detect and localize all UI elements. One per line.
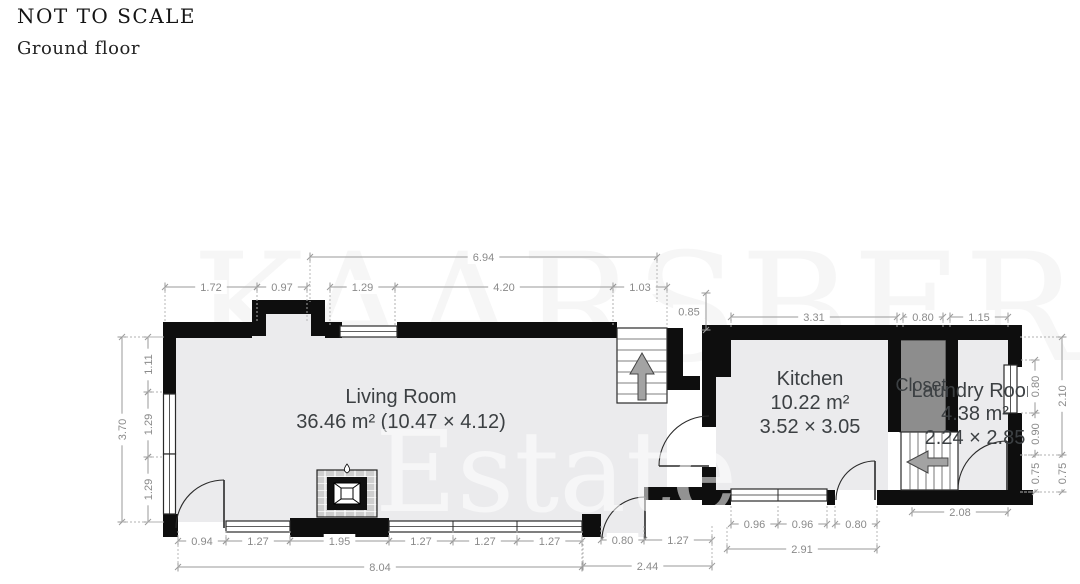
alcove-floor bbox=[266, 314, 311, 336]
dimension-value: 1.03 bbox=[624, 280, 656, 294]
svg-text:1.27: 1.27 bbox=[667, 535, 688, 547]
dimension-l4: 3.70 bbox=[115, 334, 164, 525]
dimension-value: 2.91 bbox=[786, 542, 818, 556]
dimension-value: 0.97 bbox=[266, 280, 298, 294]
svg-text:2.08: 2.08 bbox=[949, 507, 970, 519]
dimension-value: 1.11 bbox=[141, 349, 155, 381]
dimension-r5: 0.75 bbox=[1020, 452, 1069, 495]
dimension-l1: 1.11 bbox=[141, 334, 164, 395]
dimension-value: 0.96 bbox=[787, 517, 819, 531]
svg-text:0.85: 0.85 bbox=[678, 307, 699, 319]
dimension-t6: 6.94 bbox=[307, 250, 660, 302]
dimension-value: 1.27 bbox=[534, 534, 566, 548]
wall-segment bbox=[311, 300, 325, 336]
svg-text:0.90: 0.90 bbox=[1030, 423, 1042, 444]
dimension-l3: 1.29 bbox=[141, 454, 164, 525]
dimension-value: 0.85 bbox=[673, 305, 705, 319]
svg-text:0.96: 0.96 bbox=[792, 519, 813, 531]
kitchen-floor bbox=[716, 340, 888, 490]
dimension-kb1: 0.96 bbox=[728, 506, 781, 531]
dimension-value: 1.29 bbox=[141, 474, 155, 506]
wall-segment bbox=[702, 325, 731, 377]
wall-segment bbox=[582, 514, 601, 537]
dimension-kb2: 0.96 bbox=[775, 506, 830, 531]
room-label-living-name: Living Room bbox=[345, 386, 456, 408]
dimension-h3: 2.44 bbox=[580, 538, 715, 573]
dimension-value: 0.90 bbox=[1028, 418, 1042, 450]
dimension-value: 1.27 bbox=[469, 534, 501, 548]
dimension-value: 1.27 bbox=[242, 534, 274, 548]
dimension-value: 0.80 bbox=[1028, 371, 1042, 403]
svg-text:1.27: 1.27 bbox=[539, 536, 560, 548]
svg-text:6.94: 6.94 bbox=[473, 252, 494, 264]
dimension-value: 2.44 bbox=[632, 559, 664, 573]
room-label-laundry-size: 2.24 × 2.85 bbox=[925, 427, 1026, 449]
svg-text:2.44: 2.44 bbox=[637, 561, 658, 573]
svg-text:1.29: 1.29 bbox=[143, 414, 155, 435]
wall-segment bbox=[877, 490, 1033, 505]
svg-text:2.10: 2.10 bbox=[1057, 385, 1069, 406]
svg-text:0.94: 0.94 bbox=[191, 536, 212, 548]
svg-text:0.80: 0.80 bbox=[912, 312, 933, 324]
wall-segment bbox=[163, 322, 176, 394]
dimension-t5: 1.03 bbox=[610, 280, 670, 327]
svg-text:1.03: 1.03 bbox=[629, 282, 650, 294]
dimension-value: 2.10 bbox=[1055, 380, 1069, 412]
svg-text:3.31: 3.31 bbox=[803, 312, 824, 324]
dimension-value: 1.29 bbox=[141, 409, 155, 441]
dimension-value: 0.80 bbox=[907, 310, 939, 324]
dimension-value: 1.72 bbox=[195, 280, 227, 294]
room-label-laundry-name: Laundry Room bbox=[911, 380, 1042, 402]
dimension-b7: 8.04 bbox=[175, 537, 585, 574]
window bbox=[731, 489, 827, 501]
dimension-b1: 0.94 bbox=[175, 529, 229, 548]
dimension-value: 1.95 bbox=[324, 534, 356, 548]
svg-text:0.80: 0.80 bbox=[1030, 376, 1042, 397]
dimension-value: 0.75 bbox=[1055, 458, 1069, 490]
fireplace-icon bbox=[317, 464, 377, 517]
dimension-lb1: 2.08 bbox=[909, 505, 1011, 519]
svg-text:1.27: 1.27 bbox=[410, 536, 431, 548]
dimension-value: 0.75 bbox=[1028, 458, 1042, 490]
dimension-l2: 1.29 bbox=[141, 389, 164, 460]
dimension-value: 4.20 bbox=[488, 280, 520, 294]
dimension-value: 1.29 bbox=[347, 280, 379, 294]
dimension-value: 0.94 bbox=[186, 534, 218, 548]
dimension-value: 1.15 bbox=[963, 310, 995, 324]
wall-segment bbox=[702, 377, 716, 427]
room-label-kitchen-area: 10.22 m² bbox=[771, 392, 850, 414]
window bbox=[164, 454, 176, 514]
dimension-value: 0.80 bbox=[840, 517, 872, 531]
svg-text:0.97: 0.97 bbox=[271, 282, 292, 294]
dimension-value: 0.80 bbox=[607, 533, 639, 547]
wall-segment bbox=[827, 490, 835, 505]
svg-text:8.04: 8.04 bbox=[369, 562, 390, 574]
dimension-value: 3.31 bbox=[798, 310, 830, 324]
floor-plan-canvas: Living Room36.46 m² (10.47 × 4.12)Kitche… bbox=[0, 0, 1080, 584]
window bbox=[389, 521, 582, 532]
dimension-r3: 0.75 bbox=[1021, 452, 1042, 495]
dimension-t3: 1.29 bbox=[327, 280, 398, 327]
dimension-value: 2.08 bbox=[944, 505, 976, 519]
dimension-value: 0.96 bbox=[739, 517, 771, 531]
wall-segment bbox=[644, 487, 712, 500]
dimension-h2: 1.27 bbox=[641, 524, 715, 547]
svg-text:0.80: 0.80 bbox=[612, 535, 633, 547]
svg-text:1.27: 1.27 bbox=[247, 536, 268, 548]
dimension-value: 8.04 bbox=[364, 560, 396, 574]
svg-text:1.27: 1.27 bbox=[474, 536, 495, 548]
svg-text:1.29: 1.29 bbox=[143, 479, 155, 500]
svg-text:1.11: 1.11 bbox=[143, 354, 155, 375]
dimension-t4: 4.20 bbox=[392, 280, 616, 327]
floor-plan-page: NOT TO SCALE Ground floor KAARSBERG Livi… bbox=[0, 0, 1080, 584]
window bbox=[226, 521, 290, 532]
dimension-value: 1.27 bbox=[405, 534, 437, 548]
wall-segment bbox=[1008, 325, 1022, 367]
window bbox=[340, 326, 397, 337]
svg-text:4.20: 4.20 bbox=[493, 282, 514, 294]
svg-text:0.96: 0.96 bbox=[744, 519, 765, 531]
room-label-laundry-area: 4.38 m² bbox=[941, 403, 1009, 425]
room-label-kitchen-name: Kitchen bbox=[777, 368, 844, 390]
window bbox=[164, 394, 176, 454]
svg-text:1.29: 1.29 bbox=[352, 282, 373, 294]
svg-text:1.15: 1.15 bbox=[968, 312, 989, 324]
wall-segment bbox=[702, 490, 731, 505]
wall-segment bbox=[667, 376, 700, 390]
wall-segment bbox=[702, 325, 1022, 340]
svg-text:2.91: 2.91 bbox=[791, 544, 812, 556]
dimension-value: 1.27 bbox=[662, 533, 694, 547]
room-label-living-area: 36.46 m² (10.47 × 4.12) bbox=[296, 411, 506, 433]
svg-text:0.75: 0.75 bbox=[1030, 463, 1042, 484]
staircase-up bbox=[617, 328, 667, 403]
dimension-kb3: 0.80 bbox=[832, 506, 880, 531]
svg-text:0.75: 0.75 bbox=[1057, 463, 1069, 484]
room-label-kitchen-size: 3.52 × 3.05 bbox=[760, 416, 861, 438]
wall-segment bbox=[163, 322, 252, 338]
living-room-floor bbox=[176, 336, 667, 537]
wall-segment bbox=[397, 322, 617, 338]
dimension-value: 3.70 bbox=[115, 414, 129, 446]
svg-text:0.80: 0.80 bbox=[845, 519, 866, 531]
dimension-t1: 1.72 bbox=[162, 280, 260, 322]
svg-text:1.72: 1.72 bbox=[200, 282, 221, 294]
dimension-value: 6.94 bbox=[468, 250, 500, 264]
svg-text:3.70: 3.70 bbox=[117, 419, 129, 440]
svg-text:1.95: 1.95 bbox=[329, 536, 350, 548]
